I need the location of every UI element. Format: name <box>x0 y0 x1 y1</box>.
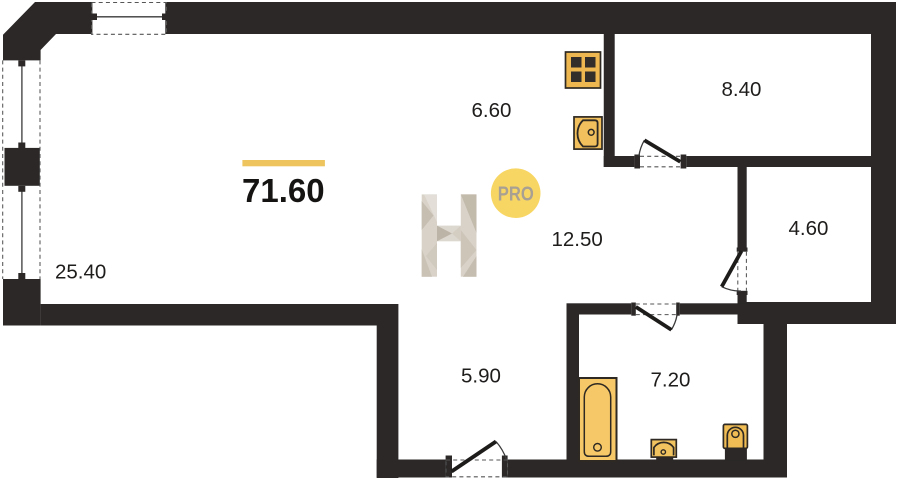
svg-text:25.40: 25.40 <box>55 261 106 284</box>
svg-text:8.40: 8.40 <box>722 78 762 101</box>
svg-text:71.60: 71.60 <box>242 172 325 209</box>
svg-text:12.50: 12.50 <box>552 228 603 251</box>
svg-text:6.60: 6.60 <box>472 99 512 122</box>
svg-text:4.60: 4.60 <box>789 217 829 240</box>
svg-text:5.90: 5.90 <box>461 365 501 388</box>
svg-text:PRO: PRO <box>498 184 534 206</box>
svg-text:7.20: 7.20 <box>651 369 691 392</box>
